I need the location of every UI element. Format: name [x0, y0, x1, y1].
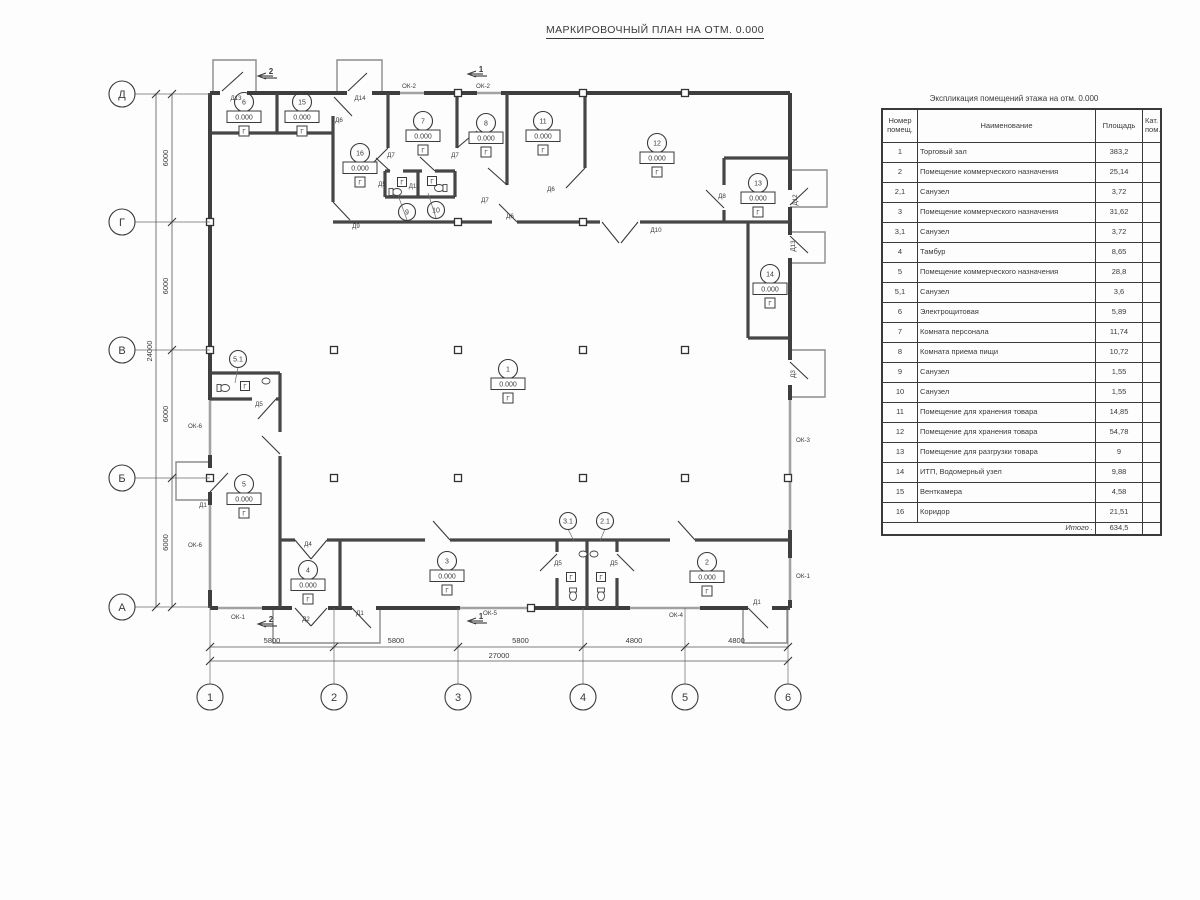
room-number: 4: [306, 568, 310, 575]
section-number: 2: [269, 615, 274, 624]
sink-icon: [590, 551, 598, 557]
table-cell: 5,89: [1096, 303, 1143, 323]
column-mark: [580, 219, 587, 226]
axis-label: 2: [331, 692, 337, 704]
elevation-value: 0.000: [438, 574, 456, 581]
table-row: 5Помещение коммерческого назначения28,8: [882, 263, 1161, 283]
table-cell: Помещение для хранения товара: [918, 423, 1096, 443]
table-cell: [1143, 403, 1162, 423]
room-number: 2: [705, 560, 709, 567]
table-row: 4Тамбур8,65: [882, 243, 1161, 263]
room-marker: 160.000Г: [343, 144, 377, 188]
sanitary-fixtures: [217, 185, 605, 601]
door-labels: Д13Д14Д6Д9Д7Д7Д7Д6Д6Д5Д11Д8Д10Д12Д13Д3Д5…: [199, 95, 799, 623]
dim-text: 5800: [264, 636, 281, 645]
table-cell: 383,2: [1096, 143, 1143, 163]
toilet-icon: [217, 385, 230, 392]
room-marker-leader: 5.1: [230, 351, 247, 384]
table-cell: [1143, 203, 1162, 223]
axis-label: В: [118, 345, 125, 357]
table-cell: [1143, 503, 1162, 523]
table-cell: 2: [882, 163, 918, 183]
table-cell: 7: [882, 323, 918, 343]
room-marker: 40.000Г: [291, 561, 325, 605]
column-mark: [580, 90, 587, 97]
table-cell: 3: [882, 203, 918, 223]
door-label: Д5: [610, 560, 618, 567]
col-header-area: Площадь: [1096, 109, 1143, 143]
table-cell: [1143, 323, 1162, 343]
table-row: 3Помещение коммерческого назначения31,62: [882, 203, 1161, 223]
toilet-icon: [598, 588, 605, 601]
table-cell: 8: [882, 343, 918, 363]
table-row: 13Помещение для разгрузки товара9: [882, 443, 1161, 463]
window-label: ОК-2: [476, 83, 490, 90]
column-mark: [455, 90, 462, 97]
window-label: ОК-3: [796, 437, 810, 444]
dim-text: 4800: [626, 636, 643, 645]
table-row: 16Коридор21,51: [882, 503, 1161, 523]
table-cell: Санузел: [918, 363, 1096, 383]
table-cell: Помещение для разгрузки товара: [918, 443, 1096, 463]
window-label: ОК-4: [669, 612, 683, 619]
door-label: Д6: [506, 213, 514, 220]
table-cell: 15: [882, 483, 918, 503]
dim-text: 6000: [161, 534, 170, 551]
door-label: Д7: [451, 152, 459, 159]
window-strips: [210, 93, 790, 608]
room-number: 9: [405, 210, 409, 217]
door-label: Д6: [547, 186, 555, 193]
table-cell: 21,51: [1096, 503, 1143, 523]
room-number: 13: [754, 181, 762, 188]
columns: [207, 90, 792, 612]
total-label: Итого .: [882, 523, 1096, 535]
axis-label: А: [118, 602, 126, 614]
column-mark: [580, 347, 587, 354]
table-cell: 4: [882, 243, 918, 263]
section-number: 1: [479, 65, 484, 74]
column-mark: [331, 347, 338, 354]
table-row: 14ИТП, Водомерный узел9,88: [882, 463, 1161, 483]
table-cell: 2,1: [882, 183, 918, 203]
dim-total-text: 27000: [489, 651, 510, 660]
leader-line: [235, 367, 238, 383]
column-mark: [682, 475, 689, 482]
table-cell: 16: [882, 503, 918, 523]
table-cell: 14: [882, 463, 918, 483]
table-cell: [1143, 463, 1162, 483]
table-cell: 6: [882, 303, 918, 323]
table-row: 2,1Санузел3,72: [882, 183, 1161, 203]
door-label: Д9: [352, 223, 360, 230]
table-row: 9Санузел1,55: [882, 363, 1161, 383]
table-cell: Помещение для хранения товара: [918, 403, 1096, 423]
room-marker-leader: 2.1: [597, 513, 614, 542]
column-mark: [331, 475, 338, 482]
window-label: ОК-5: [483, 610, 497, 617]
window-label: ОК-1: [796, 573, 810, 580]
table-cell: 25,14: [1096, 163, 1143, 183]
col-header-num: Номер помещ.: [882, 109, 918, 143]
table-cell: Санузел: [918, 183, 1096, 203]
room-marker: 110.000Г: [526, 112, 560, 156]
table-cell: 28,8: [1096, 263, 1143, 283]
room-marker: 80.000Г: [469, 114, 503, 158]
elevation-value: 0.000: [235, 115, 253, 122]
table-cell: Коридор: [918, 503, 1096, 523]
table-row: 8Комната приема пищи10,72: [882, 343, 1161, 363]
table-cell: [1143, 343, 1162, 363]
column-mark: [455, 347, 462, 354]
table-cell: 9,88: [1096, 463, 1143, 483]
table-cell: [1143, 383, 1162, 403]
dim-text: 5800: [512, 636, 529, 645]
table-cell: 11,74: [1096, 323, 1143, 343]
toilet-icon: [570, 588, 577, 601]
elevation-value: 0.000: [749, 196, 767, 203]
door-label: Д1: [753, 599, 761, 606]
explication-panel: Экспликация помещений этажа на отм. 0.00…: [881, 94, 1147, 536]
room-number: 11: [539, 119, 546, 126]
table-row: 1Торговый зал383,2: [882, 143, 1161, 163]
room-number: 5.1: [233, 357, 243, 364]
column-mark: [682, 347, 689, 354]
table-cell: 3,72: [1096, 223, 1143, 243]
dim-total-text: 24000: [145, 341, 154, 362]
room-number: 14: [766, 272, 774, 279]
section-marker: 2: [258, 67, 277, 79]
room-number: 8: [484, 121, 488, 128]
room-marker: 30.000Г: [430, 552, 464, 596]
column-mark: [455, 219, 462, 226]
table-cell: Комната приема пищи: [918, 343, 1096, 363]
axis-label: 3: [455, 692, 461, 704]
table-cell: [1143, 183, 1162, 203]
elevation-value: 0.000: [235, 497, 253, 504]
table-cell: Электрощитовая: [918, 303, 1096, 323]
column-mark: [682, 90, 689, 97]
dim-text: 6000: [161, 278, 170, 295]
sink-icon: [579, 551, 587, 557]
table-cell: Тамбур: [918, 243, 1096, 263]
table-cell: Помещение коммерческого назначения: [918, 203, 1096, 223]
table-row: 12Помещение для хранения товара54,78: [882, 423, 1161, 443]
door-label: Д11: [409, 183, 420, 190]
table-cell: [1143, 223, 1162, 243]
door-label: Д6: [335, 117, 343, 124]
table-row: 6Электрощитовая5,89: [882, 303, 1161, 323]
table-row: 10Санузел1,55: [882, 383, 1161, 403]
door-label: Д10: [650, 227, 662, 234]
table-cell: [1143, 143, 1162, 163]
window-label: ОК-1: [231, 614, 245, 621]
table-header-row: Номер помещ. Наименование Площадь Кат. п…: [882, 109, 1161, 143]
room-marker-leader: 3.1: [560, 513, 577, 542]
table-cell: 12: [882, 423, 918, 443]
door-label: Д1: [356, 610, 364, 617]
table-cell: Санузел: [918, 223, 1096, 243]
table-row: 2Помещение коммерческого назначения25,14: [882, 163, 1161, 183]
table-cell: [1143, 303, 1162, 323]
table-cell: Венткамера: [918, 483, 1096, 503]
elevation-value: 0.000: [414, 134, 432, 141]
column-mark: [528, 605, 535, 612]
table-row: 3,1Санузел3,72: [882, 223, 1161, 243]
room-number: 10: [432, 208, 440, 215]
sink-icon: [262, 378, 270, 384]
table-cell: 1: [882, 143, 918, 163]
table-cell: [1143, 423, 1162, 443]
table-cell: 31,62: [1096, 203, 1143, 223]
table-cell: [1143, 243, 1162, 263]
door-label: Д7: [387, 152, 395, 159]
dim-text: 6000: [161, 406, 170, 423]
table-cell: 13: [882, 443, 918, 463]
dim-text: 4800: [728, 636, 745, 645]
door-label: Д13: [230, 95, 242, 102]
page: { "page": { "title": "МАРКИРОВОЧНЫЙ ПЛАН…: [0, 0, 1200, 900]
elevation-value: 0.000: [499, 382, 517, 389]
column-mark: [580, 475, 587, 482]
explication-title: Экспликация помещений этажа на отм. 0.00…: [881, 94, 1147, 103]
axis-label: Д: [118, 89, 126, 101]
door-label: Д7: [481, 197, 489, 204]
door-leaves: [210, 72, 808, 628]
door-label: Д5: [378, 181, 386, 188]
table-cell: 5: [882, 263, 918, 283]
table-row: 5,1Санузел3,6: [882, 283, 1161, 303]
door-label: Д4: [304, 541, 312, 548]
table-cell: ИТП, Водомерный узел: [918, 463, 1096, 483]
table-cell: 5,1: [882, 283, 918, 303]
table-cell: 1,55: [1096, 363, 1143, 383]
door-label: Д5: [255, 401, 263, 408]
section-number: 1: [479, 612, 484, 621]
door-label: Д13: [790, 240, 797, 252]
table-cell: 8,65: [1096, 243, 1143, 263]
explication-table: Номер помещ. Наименование Площадь Кат. п…: [881, 108, 1162, 536]
table-cell: Помещение коммерческого назначения: [918, 263, 1096, 283]
table-cell: [1143, 283, 1162, 303]
table-row: 15Венткамера4,58: [882, 483, 1161, 503]
exterior-walls: [210, 93, 790, 608]
room-number: 12: [653, 141, 661, 148]
column-mark: [455, 475, 462, 482]
table-cell: [1143, 363, 1162, 383]
room-marker: 140.000Г: [753, 265, 787, 309]
room-marker: 130.000Г: [741, 174, 775, 218]
elevation-value: 0.000: [698, 575, 716, 582]
table-total-row: Итого .634,5: [882, 523, 1161, 535]
table-cell: 10,72: [1096, 343, 1143, 363]
table-cell: 1,55: [1096, 383, 1143, 403]
table-row: 11Помещение для хранения товара14,85: [882, 403, 1161, 423]
section-markers: 2121: [258, 65, 487, 627]
section-marker: 2: [258, 615, 277, 627]
room-marker: 70.000Г: [406, 112, 440, 156]
table-cell: 9: [882, 363, 918, 383]
door-label: Д2: [302, 616, 310, 623]
room-number: 3: [445, 559, 449, 566]
elevation-value: 0.000: [761, 287, 779, 294]
porch-outlines: [176, 60, 827, 643]
elevation-value: 0.000: [351, 166, 369, 173]
col-header-cat: Кат. пом.: [1143, 109, 1162, 143]
door-label: Д14: [354, 95, 366, 102]
table-row: 7Комната персонала11,74: [882, 323, 1161, 343]
dim-text: 5800: [388, 636, 405, 645]
window-label: ОК-6: [188, 542, 202, 549]
total-value: 634,5: [1096, 523, 1143, 535]
table-cell: 3,1: [882, 223, 918, 243]
floor-plan: ДГВБА123456 5800580058004800480027000600…: [0, 0, 900, 730]
room-number: 15: [298, 100, 306, 107]
table-cell: [1143, 263, 1162, 283]
elevation-value: 0.000: [477, 136, 495, 143]
door-label: Д5: [554, 560, 562, 567]
room-marker: 20.000Г: [690, 553, 724, 597]
section-marker: 1: [468, 65, 487, 77]
room-marker: 10.000Г: [491, 360, 525, 404]
axis-label: 4: [580, 692, 586, 704]
door-label: Д8: [718, 193, 726, 200]
axis-label: 5: [682, 692, 688, 704]
table-cell: 3,6: [1096, 283, 1143, 303]
table-cell: 10: [882, 383, 918, 403]
room-number: 1: [506, 367, 510, 374]
door-label: Д3: [790, 370, 797, 378]
room-marker: 150.000Г: [285, 93, 319, 137]
room-number: 5: [242, 482, 246, 489]
door-label: Д12: [792, 194, 799, 206]
table-cell: 14,85: [1096, 403, 1143, 423]
table-cell: 4,58: [1096, 483, 1143, 503]
room-marker: 120.000Г: [640, 134, 674, 178]
column-mark: [785, 475, 792, 482]
table-cell: Торговый зал: [918, 143, 1096, 163]
elevation-value: 0.000: [293, 115, 311, 122]
table-cell: [1143, 483, 1162, 503]
axis-label: Б: [118, 473, 125, 485]
room-number: 7: [421, 119, 425, 126]
interior-walls: [210, 93, 790, 608]
table-cell: 11: [882, 403, 918, 423]
axis-label: Г: [119, 217, 125, 229]
table-cell: Помещение коммерческого назначения: [918, 163, 1096, 183]
room-marker: 50.000Г: [227, 475, 261, 519]
door-label: Д1: [199, 502, 207, 509]
axis-label: 6: [785, 692, 791, 704]
axis-label: 1: [207, 692, 213, 704]
room-number: 6: [242, 100, 246, 107]
window-label: ОК-2: [402, 83, 416, 90]
room-number: 2.1: [600, 519, 610, 526]
elevation-value: 0.000: [299, 583, 317, 590]
toilet-icon: [389, 189, 402, 196]
table-cell: Санузел: [918, 283, 1096, 303]
dim-text: 6000: [161, 150, 170, 167]
elevation-value: 0.000: [648, 156, 666, 163]
table-cell: 9: [1096, 443, 1143, 463]
room-number: 3.1: [563, 519, 573, 526]
table-cell: [1143, 443, 1162, 463]
room-number: 16: [356, 151, 364, 158]
table-cell: 54,78: [1096, 423, 1143, 443]
window-label: ОК-6: [188, 423, 202, 430]
elevation-value: 0.000: [534, 134, 552, 141]
room-marker-leader: 9: [398, 195, 416, 221]
table-cell: Комната персонала: [918, 323, 1096, 343]
section-number: 2: [269, 67, 274, 76]
table-cell: [1143, 163, 1162, 183]
table-cell: Санузел: [918, 383, 1096, 403]
col-header-name: Наименование: [918, 109, 1096, 143]
table-cell: 3,72: [1096, 183, 1143, 203]
